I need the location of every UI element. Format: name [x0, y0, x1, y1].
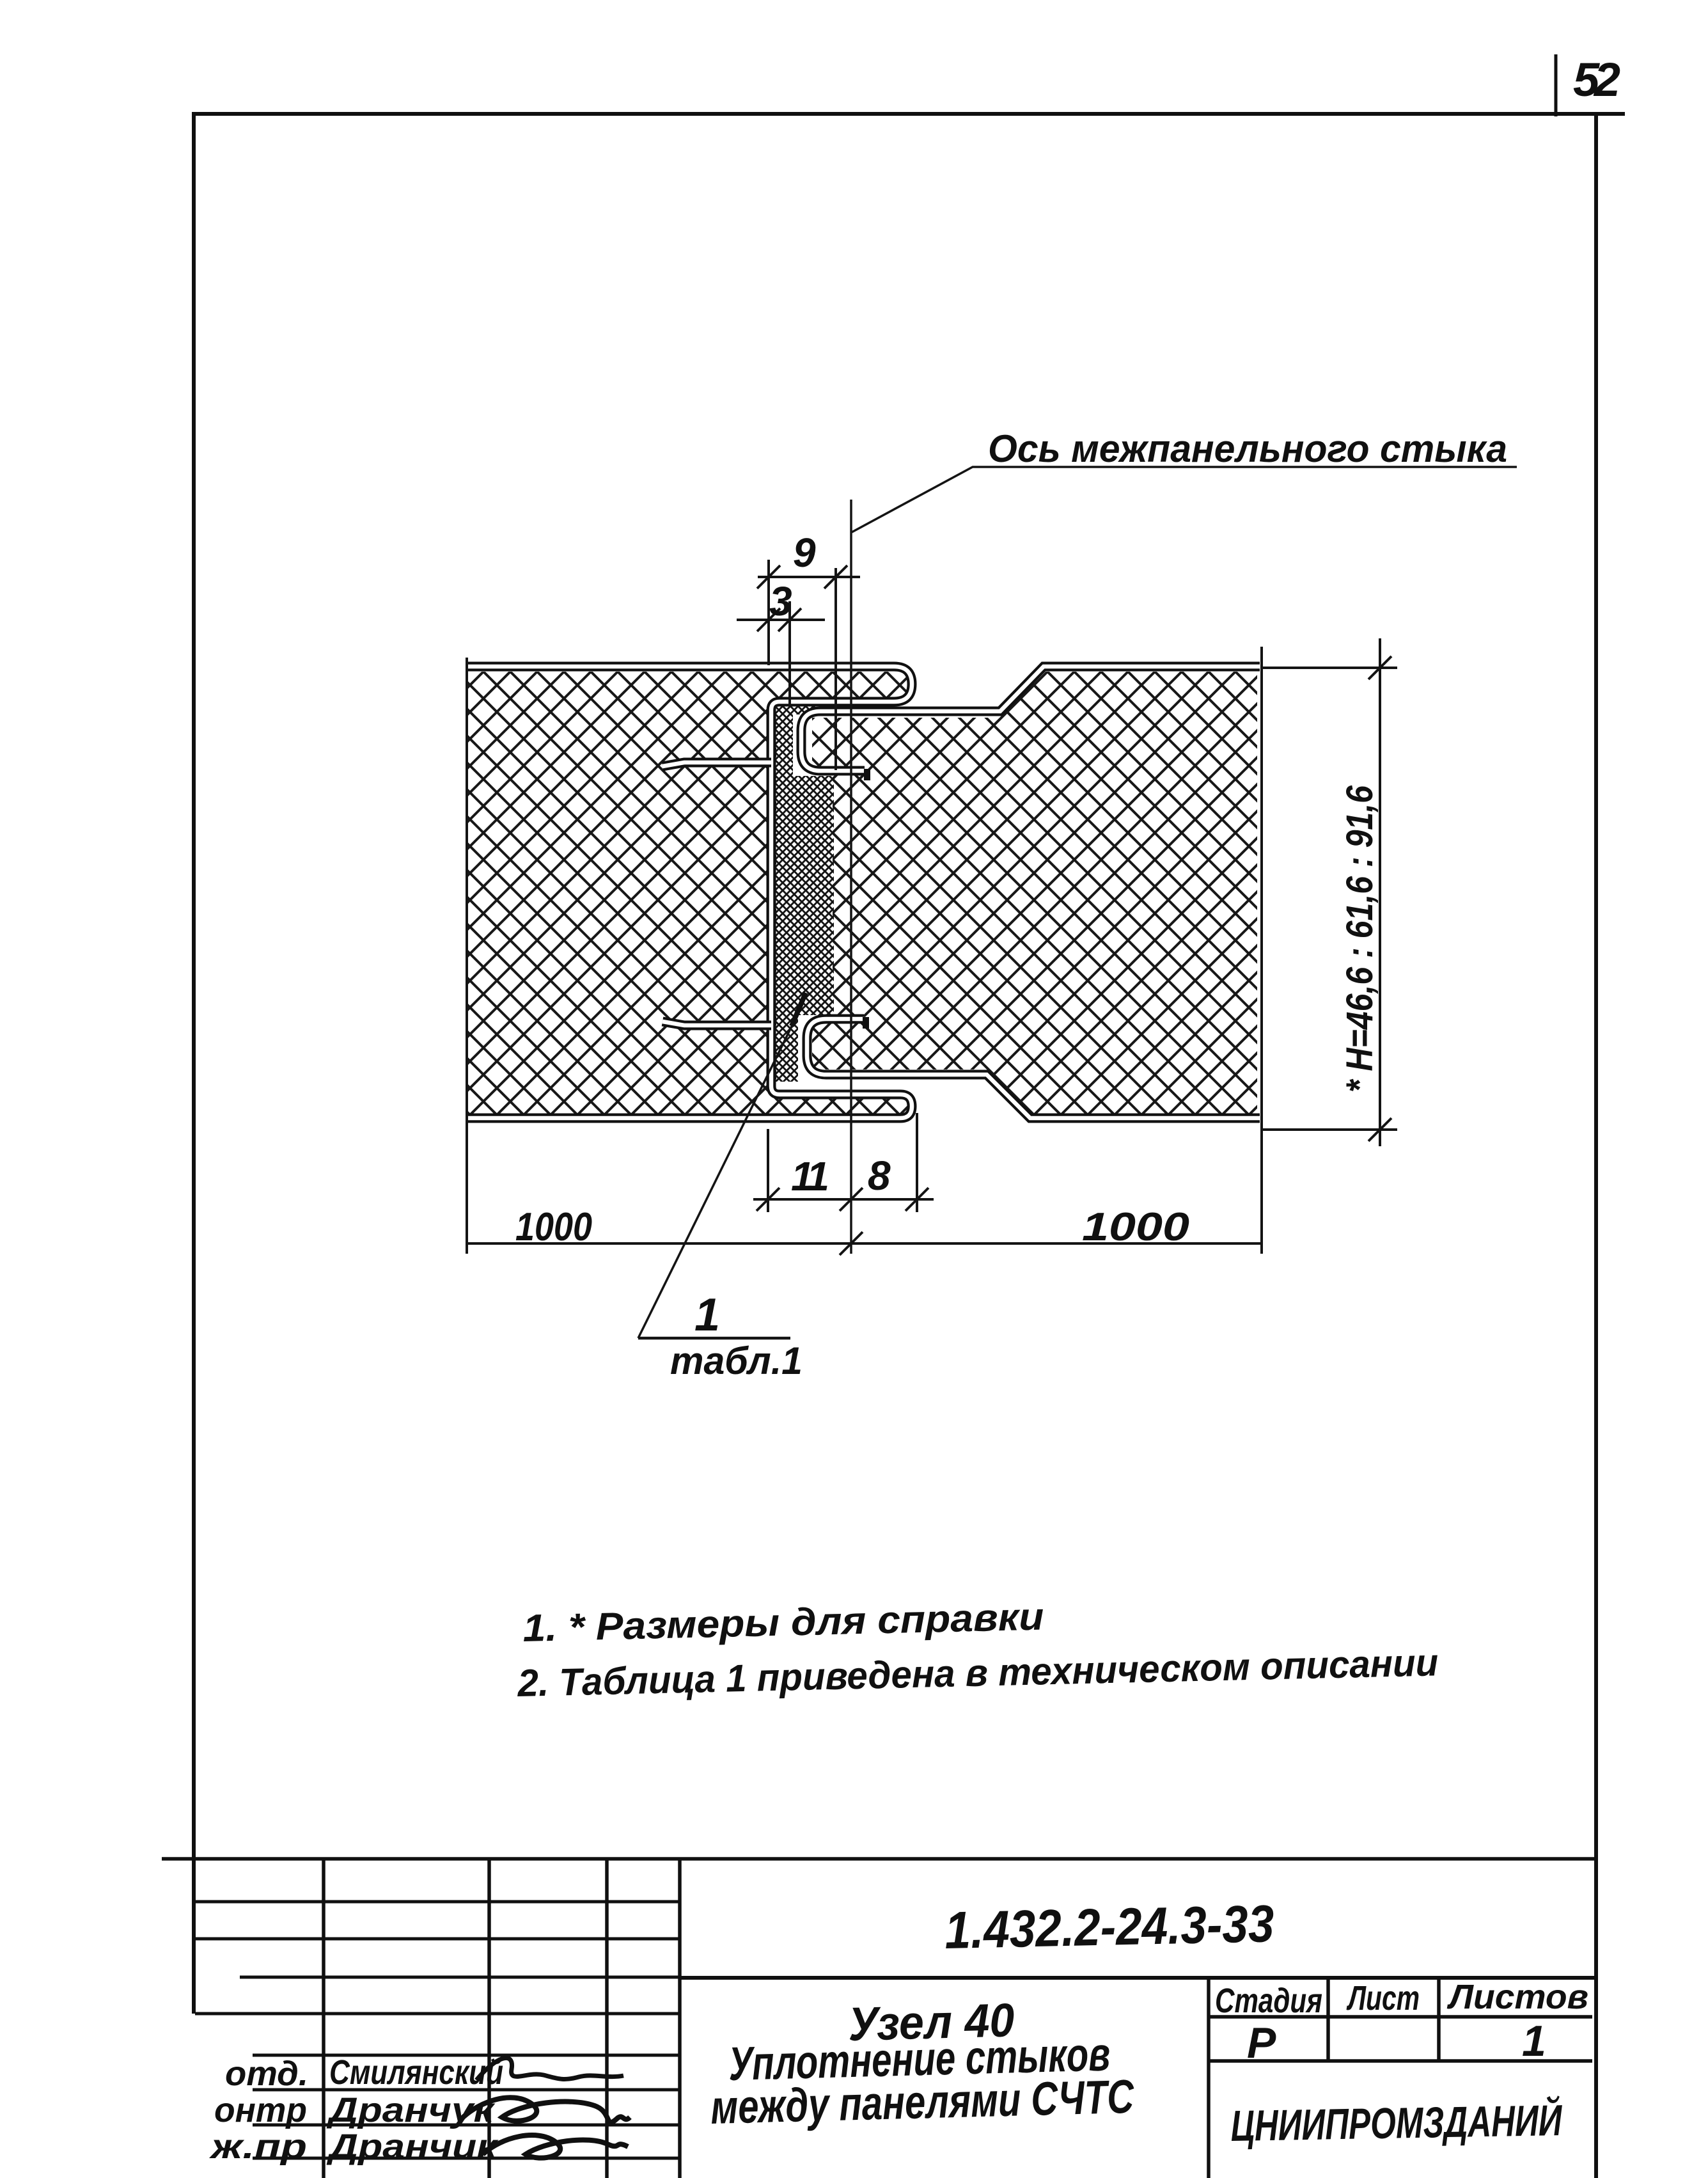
svg-text:Лист: Лист	[1346, 1979, 1420, 2017]
svg-text:1: 1	[1522, 2017, 1546, 2065]
svg-text:3: 3	[769, 578, 792, 624]
svg-text:между панелями СЧТС: между панелями СЧТС	[710, 2070, 1135, 2134]
svg-text:Р: Р	[1247, 2019, 1276, 2067]
svg-text:ЦНИИПРОМЗДАНИЙ: ЦНИИПРОМЗДАНИЙ	[1230, 2095, 1563, 2150]
svg-text:8: 8	[868, 1153, 891, 1199]
svg-text:отд.: отд.	[225, 2055, 308, 2093]
svg-text:1000: 1000	[1082, 1205, 1189, 1249]
svg-text:11: 11	[791, 1153, 829, 1199]
svg-text:Дранчик: Дранчик	[326, 2127, 499, 2166]
svg-text:Стадия: Стадия	[1215, 1982, 1322, 2020]
svg-text:9: 9	[793, 530, 816, 576]
svg-text:1: 1	[694, 1290, 720, 1341]
svg-text:табл.1: табл.1	[670, 1339, 803, 1382]
svg-text:1000: 1000	[515, 1205, 592, 1249]
svg-text:1.432.2-24.3-33: 1.432.2-24.3-33	[944, 1895, 1274, 1960]
svg-text:Ось межпанельного стыка: Ось межпанельного стыка	[988, 427, 1507, 470]
svg-text:Листов: Листов	[1446, 1978, 1588, 2016]
svg-text:ж.пр: ж.пр	[208, 2127, 307, 2166]
svg-text:онтр: онтр	[214, 2091, 307, 2129]
svg-text:* Н=46,6 : 61,6 : 91,6: * Н=46,6 : 61,6 : 91,6	[1339, 785, 1381, 1093]
svg-text:Смилянский: Смилянский	[329, 2053, 503, 2092]
svg-text:52: 52	[1573, 53, 1620, 106]
